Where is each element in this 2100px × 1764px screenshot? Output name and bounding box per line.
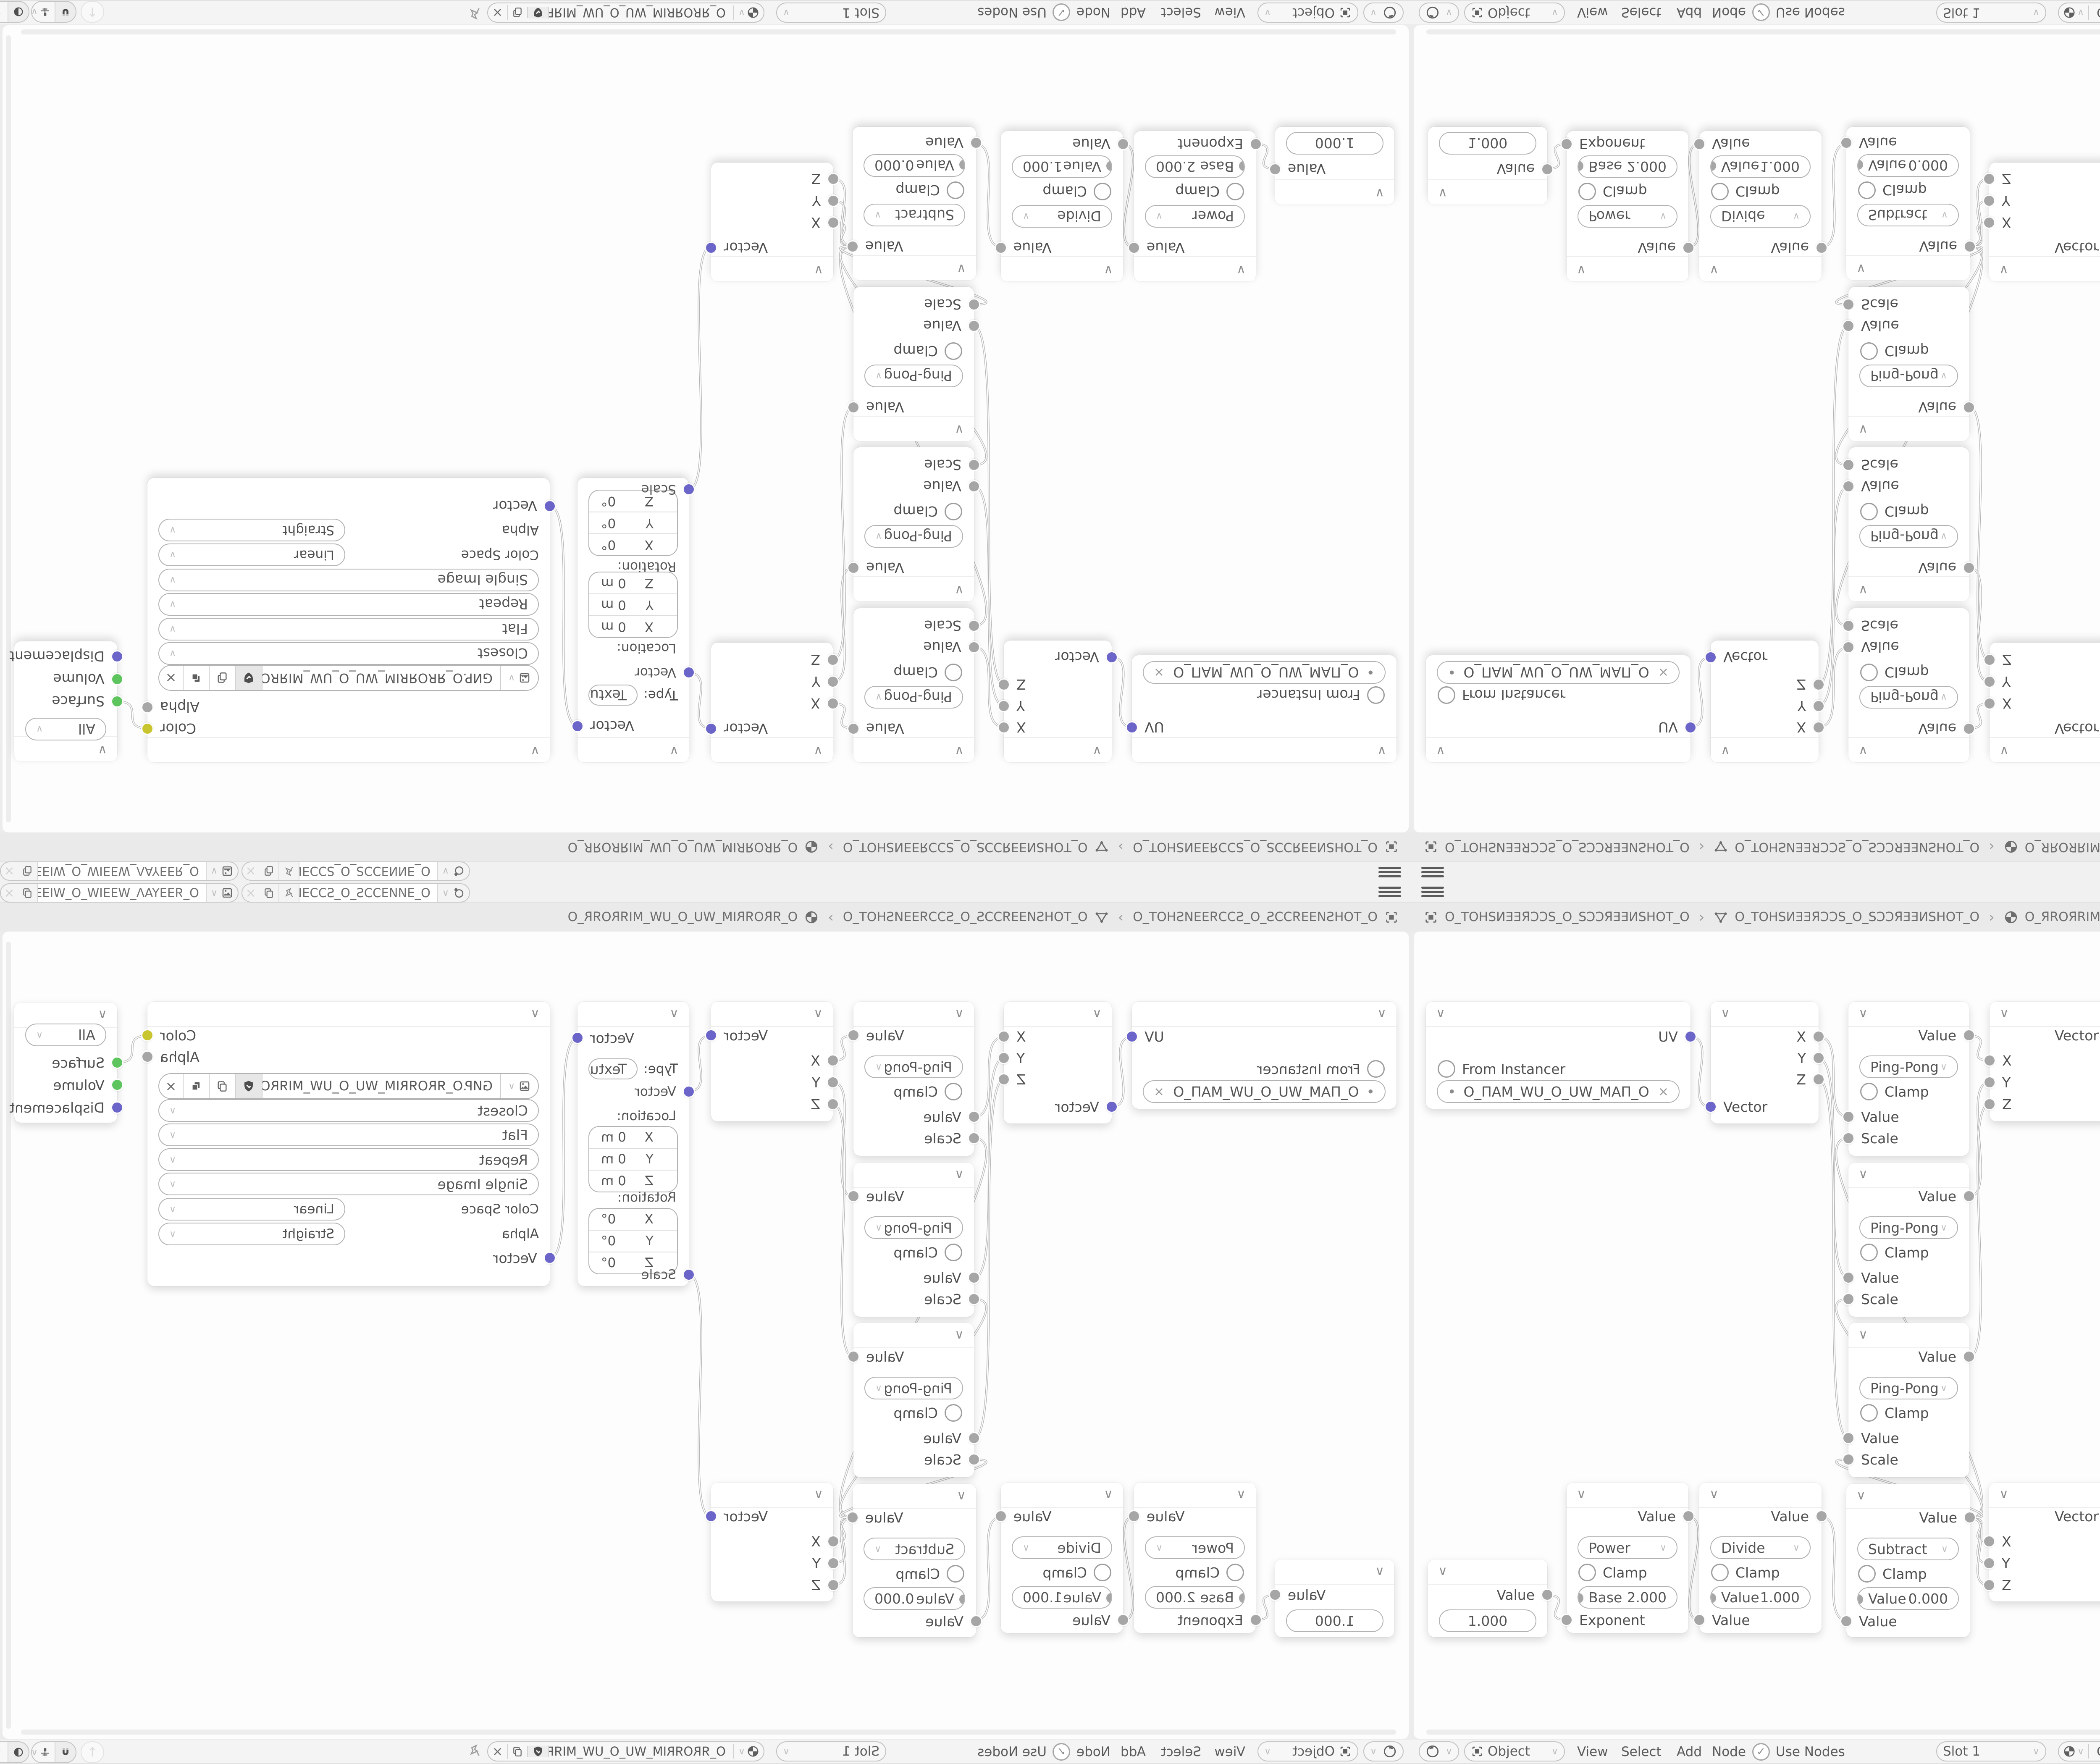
node-material-output[interactable]: ∨ All∨ Surface Volume Displacement xyxy=(14,1003,117,1123)
horizontal-scrollbar[interactable] xyxy=(1426,29,2100,34)
menu-view[interactable]: View xyxy=(1577,0,1608,24)
node-math-ping-pong-z[interactable]: ∨ Value Ping-Pong∨ Clamp Value Scale xyxy=(853,287,974,441)
rotation-y-field[interactable]: Y0° xyxy=(589,512,677,534)
x-output-socket[interactable] xyxy=(1814,1032,1824,1042)
vector-output-socket[interactable] xyxy=(706,1030,716,1040)
node-header[interactable]: ∨ xyxy=(1990,1002,2100,1027)
overlays-icon[interactable] xyxy=(8,2,29,22)
image-layer-icon[interactable]: ∨ xyxy=(206,862,238,880)
value-output-socket[interactable] xyxy=(1964,1191,1974,1201)
collapse-chevron-icon[interactable]: ∨ xyxy=(2000,1006,2009,1021)
collapse-chevron-icon[interactable]: ∨ xyxy=(955,1006,964,1021)
node-header[interactable]: ∨ xyxy=(1848,737,1969,762)
math-operation-select[interactable]: Power∨ xyxy=(1578,1536,1677,1559)
overlays-controls[interactable]: ∨ xyxy=(0,1741,29,1763)
math-operation-select[interactable]: Subtract∨ xyxy=(864,1538,965,1560)
material-datablock[interactable]: ∨ O_ЯROЯRIM_WU_O_UW_MIЯROЯR_O × xyxy=(2058,1741,2100,1761)
math-value-field[interactable]: Value1.000 xyxy=(1710,1586,1811,1609)
collapse-chevron-icon[interactable]: ∨ xyxy=(955,1327,964,1342)
clamp-checkbox[interactable] xyxy=(1858,1565,1876,1583)
scale-input-socket[interactable] xyxy=(1843,460,1853,470)
vector-input-socket[interactable] xyxy=(1706,652,1716,662)
value-output-socket[interactable] xyxy=(1129,1511,1139,1521)
value-input-socket[interactable] xyxy=(969,1433,979,1443)
collapse-chevron-icon[interactable]: ∨ xyxy=(955,583,964,597)
menu-hamburger-icon[interactable] xyxy=(1378,866,1401,877)
magnet-icon[interactable] xyxy=(55,1742,76,1762)
close-icon[interactable]: × xyxy=(1658,665,1669,680)
interpolation-select[interactable]: Closest∨ xyxy=(158,1099,539,1122)
breadcrumb-object[interactable]: O_TOHSИƎƎЯƆƆS_O_SƆƆЯƎƎИSHOT_O xyxy=(1735,840,1979,854)
collapse-chevron-icon[interactable]: ∨ xyxy=(1092,743,1102,758)
close-icon[interactable]: × xyxy=(1154,1084,1164,1099)
vector-output-socket[interactable] xyxy=(572,721,583,731)
overlays-dropdown[interactable]: ∨ xyxy=(0,2,8,22)
clamp-checkbox[interactable] xyxy=(945,1244,962,1261)
clamp-checkbox[interactable] xyxy=(945,342,962,360)
math-operation-select[interactable]: Power∨ xyxy=(1145,205,1245,228)
close-icon[interactable]: × xyxy=(242,886,259,900)
math-value-field[interactable]: Base2.000 xyxy=(1578,1586,1677,1609)
node-header[interactable]: ∨ xyxy=(1428,1559,1547,1585)
scale-input-socket[interactable] xyxy=(969,621,979,631)
menu-select[interactable]: Select xyxy=(1621,0,1662,24)
y-input-socket[interactable] xyxy=(1984,1077,1995,1087)
clamp-checkbox[interactable] xyxy=(1858,181,1876,199)
material-datablock[interactable]: ∨ O_ЯROЯRIM_WU_O_UW_MIЯROЯR_O × xyxy=(487,1741,764,1761)
snap-settings-icon[interactable]: ∨ xyxy=(31,1742,55,1762)
node-header[interactable]: ∨ xyxy=(1567,1483,1688,1508)
clamp-checkbox[interactable] xyxy=(945,664,962,681)
vector-input-socket[interactable] xyxy=(684,667,694,677)
math-operation-select[interactable]: Ping-Pong∨ xyxy=(1859,1055,1958,1078)
node-uv-map[interactable]: ∨ UV From Instancer • O_ПAM_WU_O_UW_MAП_… xyxy=(1132,1002,1396,1109)
node-header[interactable]: ∨ xyxy=(853,255,976,280)
collapse-chevron-icon[interactable]: ∨ xyxy=(1999,1487,2008,1501)
z-input-socket[interactable] xyxy=(1984,655,1995,665)
scale-input-socket[interactable] xyxy=(684,1270,694,1280)
collapse-chevron-icon[interactable]: ∨ xyxy=(814,743,823,758)
image-layer-icon[interactable]: ∨ xyxy=(206,884,238,902)
clamp-checkbox[interactable] xyxy=(1226,183,1244,200)
interpolation-select[interactable]: Closest∨ xyxy=(158,642,539,665)
value-input-socket[interactable] xyxy=(1710,1593,1716,1603)
second-input-socket[interactable] xyxy=(1841,138,1851,148)
menu-node[interactable]: Node xyxy=(1076,0,1110,24)
collapse-chevron-icon[interactable]: ∨ xyxy=(1377,1006,1386,1021)
menu-node[interactable]: Node xyxy=(1076,1740,1110,1764)
value-output-socket[interactable] xyxy=(848,563,858,573)
location-y-field[interactable]: Y0 m xyxy=(589,1148,677,1170)
uvmap-select[interactable]: • O_ПAM_WU_O_UW_MAП_O × xyxy=(1143,661,1386,684)
node-uv-map[interactable]: ∨ UV From Instancer • O_ПAM_WU_O_UW_MAП_… xyxy=(1132,655,1396,762)
vector-input-socket[interactable] xyxy=(1107,652,1117,662)
y-input-socket[interactable] xyxy=(828,196,838,206)
overlays-icon[interactable] xyxy=(8,1742,29,1762)
math-value-field[interactable]: Value1.000 xyxy=(1710,155,1811,178)
z-output-socket[interactable] xyxy=(999,680,1009,690)
close-icon[interactable]: × xyxy=(488,5,508,20)
collapse-chevron-icon[interactable]: ∨ xyxy=(98,1007,107,1021)
displacement-input-socket[interactable] xyxy=(112,1102,122,1113)
menu-add[interactable]: Add xyxy=(1677,1740,1702,1764)
uvmap-select[interactable]: • O_ПAM_WU_O_UW_MAП_O × xyxy=(1143,1080,1386,1103)
math-operation-select[interactable]: Ping-Pong∨ xyxy=(864,686,963,709)
close-icon[interactable]: × xyxy=(159,1074,184,1098)
collapse-chevron-icon[interactable]: ∨ xyxy=(530,743,540,758)
node-material-output[interactable]: ∨ All∨ Surface Volume Displacement xyxy=(14,641,117,761)
slot-select[interactable]: Slot 1 ∨ xyxy=(776,3,886,23)
pin-icon[interactable] xyxy=(279,862,299,880)
x-output-socket[interactable] xyxy=(1814,722,1824,732)
collapse-chevron-icon[interactable]: ∨ xyxy=(1999,262,2008,277)
math-operation-select[interactable]: Subtract∨ xyxy=(1857,204,1959,226)
menu-view[interactable]: View xyxy=(1577,1740,1608,1764)
location-fields[interactable]: X0 m Y0 m Z0 m xyxy=(588,572,678,638)
value-output-socket[interactable] xyxy=(1270,1590,1280,1600)
scale-input-socket[interactable] xyxy=(1843,1454,1853,1465)
node-image-texture[interactable]: ∨ Color Alpha ∨ GИP.O_ЯROЯRIM_WU_O_UW_MI… xyxy=(147,1002,550,1286)
vector-input-socket[interactable] xyxy=(1706,1102,1716,1112)
scale-input-socket[interactable] xyxy=(969,299,979,310)
y-input-socket[interactable] xyxy=(828,677,838,687)
node-header[interactable]: ∨ xyxy=(853,1484,976,1509)
node-header[interactable]: ∨ xyxy=(1848,1323,1969,1348)
x-input-socket[interactable] xyxy=(828,1055,838,1066)
collapse-chevron-icon[interactable]: ∨ xyxy=(1092,1006,1102,1021)
node-math-divide[interactable]: ∨ Value Divide∨ Clamp Value1.000 Value xyxy=(1001,131,1123,281)
fake-user-shield-icon[interactable] xyxy=(528,1746,549,1757)
node-combine-xyz-b[interactable]: ∨ Vector X Y Z xyxy=(1989,1483,2100,1601)
second-input-socket[interactable] xyxy=(1694,139,1704,149)
clamp-checkbox[interactable] xyxy=(1711,183,1729,200)
pack-icon[interactable] xyxy=(184,1074,210,1098)
volume-input-socket[interactable] xyxy=(112,674,122,684)
z-input-socket[interactable] xyxy=(828,1099,838,1109)
z-input-socket[interactable] xyxy=(1984,1580,1994,1590)
value-field[interactable]: 1.000 xyxy=(1439,1609,1536,1632)
value-output-socket[interactable] xyxy=(996,1511,1006,1521)
collapse-chevron-icon[interactable]: ∨ xyxy=(1856,1488,1866,1503)
y-output-socket[interactable] xyxy=(1814,701,1824,711)
vertical-scrollbar[interactable] xyxy=(6,942,11,1729)
location-x-field[interactable]: X0 m xyxy=(589,616,677,637)
clamp-checkbox[interactable] xyxy=(1860,1404,1878,1422)
menu-view[interactable]: View xyxy=(1214,1740,1245,1764)
node-uv-map[interactable]: ∨ UV From Instancer • O_ПAM_WU_O_UW_MAП_… xyxy=(1426,1002,1690,1109)
value-input-socket[interactable] xyxy=(1843,1433,1853,1443)
color-space-select[interactable]: Linear∨ xyxy=(158,543,345,566)
node-header[interactable]: ∨ xyxy=(711,1002,833,1027)
node-header[interactable]: ∨ xyxy=(1428,179,1547,205)
node-header[interactable]: ∨ xyxy=(853,1323,974,1348)
scene-name-field[interactable]: O_ƎИИƎƆƆS_O_SƆƆƎИ... xyxy=(299,862,437,880)
pin-icon[interactable] xyxy=(279,884,299,902)
node-header[interactable]: ∨ xyxy=(853,576,974,601)
collapse-chevron-icon[interactable]: ∨ xyxy=(1436,743,1445,758)
shader-type-select[interactable]: Object ∨ xyxy=(1257,3,1358,23)
value-output-socket[interactable] xyxy=(996,243,1006,253)
node-value[interactable]: ∨ Value 1.000 xyxy=(1428,127,1547,205)
value-input-socket[interactable] xyxy=(1843,1273,1853,1283)
clamp-checkbox[interactable] xyxy=(945,1083,962,1100)
value-input-socket[interactable] xyxy=(959,1594,965,1604)
value-field[interactable]: 1.000 xyxy=(1286,132,1383,155)
horizontal-scrollbar[interactable] xyxy=(21,1730,1396,1735)
color-output-socket[interactable] xyxy=(142,1030,152,1040)
collapse-chevron-icon[interactable]: ∨ xyxy=(955,743,964,758)
math-operation-select[interactable]: Ping-Pong∨ xyxy=(1859,525,1958,548)
node-math-subtract[interactable]: ∨ Value Subtract∨ Clamp Value0.000 Value xyxy=(1846,127,1970,280)
z-input-socket[interactable] xyxy=(828,655,838,665)
math-value-field[interactable]: Base2.000 xyxy=(1145,155,1245,178)
node-math-power[interactable]: ∨ Value Power∨ Clamp Base2.000 Exponent xyxy=(1134,131,1256,281)
editor-type-button[interactable]: ∨ xyxy=(1363,1741,1404,1761)
node-header[interactable]: ∨ xyxy=(1990,737,2100,762)
surface-input-socket[interactable] xyxy=(112,696,122,706)
node-header[interactable]: ∨ xyxy=(1001,256,1123,281)
fake-user-shield-icon[interactable] xyxy=(528,7,549,18)
clamp-checkbox[interactable] xyxy=(1711,1564,1729,1581)
value-input-socket[interactable] xyxy=(1239,1593,1245,1603)
second-input-socket[interactable] xyxy=(971,1616,981,1626)
value-field[interactable]: 1.000 xyxy=(1439,132,1536,155)
image-name-field[interactable]: GИP.O_ЯROЯRIM_WU_O_UW_MIЯROЯR_O.PNG xyxy=(262,1074,501,1098)
breadcrumb-scene[interactable]: O_TOHSИƎƎЯƆƆS_O_SƆƆЯƎƎИSHOT_O xyxy=(1133,840,1378,854)
node-header[interactable]: ∨ xyxy=(1275,179,1394,205)
value-input-socket[interactable] xyxy=(1843,321,1853,331)
value-input-socket[interactable] xyxy=(969,642,979,652)
value-input-socket[interactable] xyxy=(1106,161,1112,171)
node-mapping[interactable]: ∨ Vector Type: Texture∨ Vector Location:… xyxy=(577,478,689,762)
second-input-socket[interactable] xyxy=(1118,139,1128,149)
node-header[interactable]: ∨ xyxy=(1134,1483,1256,1508)
node-value[interactable]: ∨ Value 1.000 xyxy=(1428,1559,1547,1637)
node-math-subtract[interactable]: ∨ Value Subtract∨ Clamp Value0.000 Value xyxy=(853,127,976,280)
image-browse-button[interactable]: ∨ xyxy=(501,666,538,690)
menu-hamburger-icon[interactable] xyxy=(1378,887,1401,898)
pin-icon[interactable] xyxy=(468,5,481,20)
value-output-socket[interactable] xyxy=(1129,243,1139,253)
value-input-socket[interactable] xyxy=(1710,161,1716,171)
node-math-ping-pong-z[interactable]: ∨ Value Ping-Pong∨ Clamp Value Scale xyxy=(1848,1323,1969,1477)
collapse-chevron-icon[interactable]: ∨ xyxy=(1438,1564,1447,1578)
node-header[interactable]: ∨ xyxy=(1711,737,1819,762)
node-math-ping-pong-y[interactable]: ∨ Value Ping-Pong∨ Clamp Value Scale xyxy=(853,447,974,601)
collapse-chevron-icon[interactable]: ∨ xyxy=(1856,261,1866,276)
node-header[interactable]: ∨ xyxy=(1848,1002,1969,1027)
value-output-socket[interactable] xyxy=(1965,1512,1975,1522)
math-operation-select[interactable]: Ping-Pong∨ xyxy=(864,1055,963,1078)
value-output-socket[interactable] xyxy=(1542,1590,1552,1600)
clamp-checkbox[interactable] xyxy=(1094,1564,1111,1581)
node-separate-xyz[interactable]: ∨ X Y Z Vector xyxy=(1711,1002,1819,1123)
math-value-field[interactable]: Value0.000 xyxy=(864,1587,965,1610)
slot-select[interactable]: Slot 1 ∨ xyxy=(1936,3,2046,23)
node-math-power[interactable]: ∨ Value Power∨ Clamp Base2.000 Exponent xyxy=(1134,1483,1256,1633)
collapse-chevron-icon[interactable]: ∨ xyxy=(814,262,823,277)
breadcrumb-material[interactable]: O_ЯROЯRIM_WU_O_UW_MIЯROЯR_O xyxy=(2025,840,2100,854)
clamp-checkbox[interactable] xyxy=(1094,183,1111,200)
scale-input-socket[interactable] xyxy=(969,1454,979,1465)
collapse-chevron-icon[interactable]: ∨ xyxy=(957,1488,966,1503)
close-icon[interactable]: × xyxy=(1658,1084,1669,1099)
viewlayer-name-field[interactable]: O_ЯƎƎYAΛ_WƎƎIW_O_WIƎƎW_ΛAYƎƎЯ_O xyxy=(38,884,206,902)
value-output-socket[interactable] xyxy=(1816,243,1827,253)
node-math-subtract[interactable]: ∨ Value Subtract∨ Clamp Value0.000 Value xyxy=(853,1484,976,1637)
node-header[interactable]: ∨ xyxy=(1699,256,1822,281)
scene-name-field[interactable]: O_ƎИИƎƆƆS_O_SƆƆƎИ... xyxy=(299,884,437,902)
color-output-socket[interactable] xyxy=(142,724,152,734)
value-input-socket[interactable] xyxy=(969,481,979,491)
node-math-ping-pong-z[interactable]: ∨ Value Ping-Pong∨ Clamp Value Scale xyxy=(1848,287,1969,441)
math-operation-select[interactable]: Power∨ xyxy=(1145,1536,1245,1559)
node-header[interactable]: ∨ xyxy=(1275,1559,1394,1585)
use-nodes-checkbox[interactable]: ✓ Use Nodes xyxy=(1752,1740,1845,1764)
z-output-socket[interactable] xyxy=(1814,680,1824,690)
node-header[interactable]: ∨ xyxy=(711,1483,833,1508)
node-header[interactable]: ∨ xyxy=(147,1002,550,1027)
z-input-socket[interactable] xyxy=(828,1580,838,1590)
material-name-field[interactable]: O_ЯROЯRIM_WU_O_UW_MIЯROЯR_O xyxy=(549,1744,734,1759)
collapse-chevron-icon[interactable]: ∨ xyxy=(1236,1487,1246,1501)
image-browse-button[interactable]: ∨ xyxy=(501,1074,538,1098)
value-output-socket[interactable] xyxy=(1964,1030,1974,1040)
value-input-socket[interactable] xyxy=(1578,1593,1583,1603)
y-input-socket[interactable] xyxy=(1984,1558,1994,1568)
breadcrumb-scene[interactable]: O_TOHSИƎƎЯƆƆS_O_SƆƆЯƎƎИSHOT_O xyxy=(1445,840,1690,854)
material-browse-button[interactable]: ∨ xyxy=(2059,1745,2088,1758)
shader-type-select[interactable]: Object ∨ xyxy=(1257,1741,1358,1761)
snapping-controls[interactable]: ∨ xyxy=(31,1741,76,1763)
clamp-checkbox[interactable] xyxy=(1860,1244,1878,1261)
node-header[interactable]: ∨ xyxy=(853,416,974,441)
value-input-socket[interactable] xyxy=(1843,481,1853,491)
scale-input-socket[interactable] xyxy=(684,484,694,494)
node-math-ping-pong-y[interactable]: ∨ Value Ping-Pong∨ Clamp Value Scale xyxy=(1848,1163,1969,1317)
collapse-chevron-icon[interactable]: ∨ xyxy=(1858,1167,1868,1181)
math-operation-select[interactable]: Power∨ xyxy=(1578,205,1677,228)
clamp-checkbox[interactable] xyxy=(947,1565,964,1583)
snapping-controls[interactable]: ∨ xyxy=(31,1,76,23)
vector-input-socket[interactable] xyxy=(1107,1102,1117,1112)
image-datablock[interactable]: ∨ GИP.O_ЯROЯRIM_WU_O_UW_MIЯROЯR_O.PNG × xyxy=(158,1073,539,1099)
alpha-mode-select[interactable]: Straight∨ xyxy=(158,519,345,541)
value-output-socket[interactable] xyxy=(1964,1352,1974,1362)
collapse-chevron-icon[interactable]: ∨ xyxy=(1375,1564,1384,1578)
mapping-type-select[interactable]: Texture∨ xyxy=(588,685,638,706)
y-input-socket[interactable] xyxy=(828,1558,838,1568)
node-header[interactable]: ∨ xyxy=(1004,1002,1112,1027)
viewlayer-name-field[interactable]: O_ЯƎƎYAΛ_WƎƎIW_O_WIƎƎW_ΛAYƎƎЯ_O xyxy=(38,862,206,880)
breadcrumb-material[interactable]: O_ЯROЯRIM_WU_O_UW_MIЯROЯR_O xyxy=(568,840,798,854)
node-header[interactable]: ∨ xyxy=(577,737,689,762)
uv-output-socket[interactable] xyxy=(1685,722,1696,732)
node-combine-xyz-b[interactable]: ∨ Vector X Y Z xyxy=(1989,163,2100,281)
scene-icon[interactable]: ∨ xyxy=(437,884,469,902)
menu-node[interactable]: Node xyxy=(1712,0,1746,24)
value-input-socket[interactable] xyxy=(1857,160,1863,170)
value-input-socket[interactable] xyxy=(969,1273,979,1283)
x-input-socket[interactable] xyxy=(828,1536,838,1546)
x-input-socket[interactable] xyxy=(1984,1536,1994,1546)
collapse-chevron-icon[interactable]: ∨ xyxy=(955,422,964,437)
copy-icon[interactable] xyxy=(18,884,38,902)
second-input-socket[interactable] xyxy=(1118,1615,1128,1625)
extension-select[interactable]: Repeat∨ xyxy=(158,593,539,616)
snap-settings-icon[interactable]: ∨ xyxy=(31,2,55,22)
material-browse-button[interactable]: ∨ xyxy=(734,6,764,19)
x-input-socket[interactable] xyxy=(1984,1055,1995,1066)
collapse-chevron-icon[interactable]: ∨ xyxy=(955,1167,964,1181)
collapse-chevron-icon[interactable]: ∨ xyxy=(1377,743,1386,758)
node-header[interactable]: ∨ xyxy=(1426,737,1690,762)
location-fields[interactable]: X0 m Y0 m Z0 m xyxy=(588,1126,678,1192)
value-output-socket[interactable] xyxy=(848,1191,858,1201)
menu-hamburger-icon[interactable] xyxy=(1421,866,1444,877)
menu-hamburger-icon[interactable] xyxy=(1421,887,1444,898)
math-operation-select[interactable]: Ping-Pong∨ xyxy=(1859,1377,1958,1399)
node-mapping[interactable]: ∨ Vector Type: Texture∨ Vector Location:… xyxy=(577,1002,689,1286)
y-input-socket[interactable] xyxy=(1984,196,1994,206)
surface-input-socket[interactable] xyxy=(112,1058,122,1068)
node-header[interactable]: ∨ xyxy=(1132,1002,1396,1027)
collapse-chevron-icon[interactable]: ∨ xyxy=(2000,743,2009,758)
scene-icon[interactable]: ∨ xyxy=(437,862,469,880)
z-output-socket[interactable] xyxy=(999,1074,1009,1084)
menu-node[interactable]: Node xyxy=(1712,1740,1746,1764)
collapse-chevron-icon[interactable]: ∨ xyxy=(1709,1487,1719,1501)
node-separate-xyz[interactable]: ∨ X Y Z Vector xyxy=(1004,1002,1112,1123)
scale-input-socket[interactable] xyxy=(969,1133,979,1143)
material-name-field[interactable]: O_ЯROЯRIM_WU_O_UW_MIЯROЯR_O xyxy=(2088,1744,2100,1759)
pack-icon[interactable] xyxy=(184,666,210,690)
second-input-socket[interactable] xyxy=(971,138,981,148)
slot-select[interactable]: Slot 1 ∨ xyxy=(1936,1741,2046,1761)
node-header[interactable]: ∨ xyxy=(1848,416,1969,441)
value-output-socket[interactable] xyxy=(848,402,858,412)
alpha-output-socket[interactable] xyxy=(142,702,152,712)
scale-input-socket[interactable] xyxy=(969,1294,979,1304)
node-header[interactable]: ∨ xyxy=(1846,1484,1970,1509)
node-math-ping-pong-y[interactable]: ∨ Value Ping-Pong∨ Clamp Value Scale xyxy=(853,1163,974,1317)
menu-view[interactable]: View xyxy=(1214,0,1245,24)
scale-input-socket[interactable] xyxy=(1843,621,1853,631)
vector-output-socket[interactable] xyxy=(706,724,716,734)
collapse-chevron-icon[interactable]: ∨ xyxy=(1721,1006,1730,1021)
value-input-socket[interactable] xyxy=(1578,161,1583,171)
math-operation-select[interactable]: Ping-Pong∨ xyxy=(864,1377,963,1399)
material-browse-button[interactable]: ∨ xyxy=(734,1745,764,1758)
breadcrumb-object[interactable]: O_TOHSИƎƎЯƆƆS_O_SƆƆЯƎƎИSHOT_O xyxy=(843,910,1088,924)
node-header[interactable]: ∨ xyxy=(1848,576,1969,601)
shader-type-select[interactable]: Object ∨ xyxy=(1464,3,1565,23)
clamp-checkbox[interactable] xyxy=(1860,664,1878,681)
collapse-chevron-icon[interactable]: ∨ xyxy=(1858,1327,1868,1342)
value-output-socket[interactable] xyxy=(1964,563,1974,573)
z-output-socket[interactable] xyxy=(1814,1074,1824,1084)
value-output-socket[interactable] xyxy=(848,1352,858,1362)
alpha-mode-select[interactable]: Straight∨ xyxy=(158,1223,345,1245)
clamp-checkbox[interactable] xyxy=(1860,503,1878,520)
node-image-texture[interactable]: ∨ Color Alpha ∨ GИP.O_ЯROЯRIM_WU_O_UW_MI… xyxy=(147,478,550,762)
math-value-field[interactable]: Value0.000 xyxy=(1857,154,1959,177)
math-value-field[interactable]: Base2.000 xyxy=(1145,1586,1245,1609)
menu-select[interactable]: Select xyxy=(1621,1740,1662,1764)
scene-selector[interactable]: ∨ O_ƎИИƎƆƆS_O_SƆƆƎИ... × xyxy=(241,861,470,881)
clamp-checkbox[interactable] xyxy=(1578,183,1596,200)
value-input-socket[interactable] xyxy=(1239,161,1245,171)
